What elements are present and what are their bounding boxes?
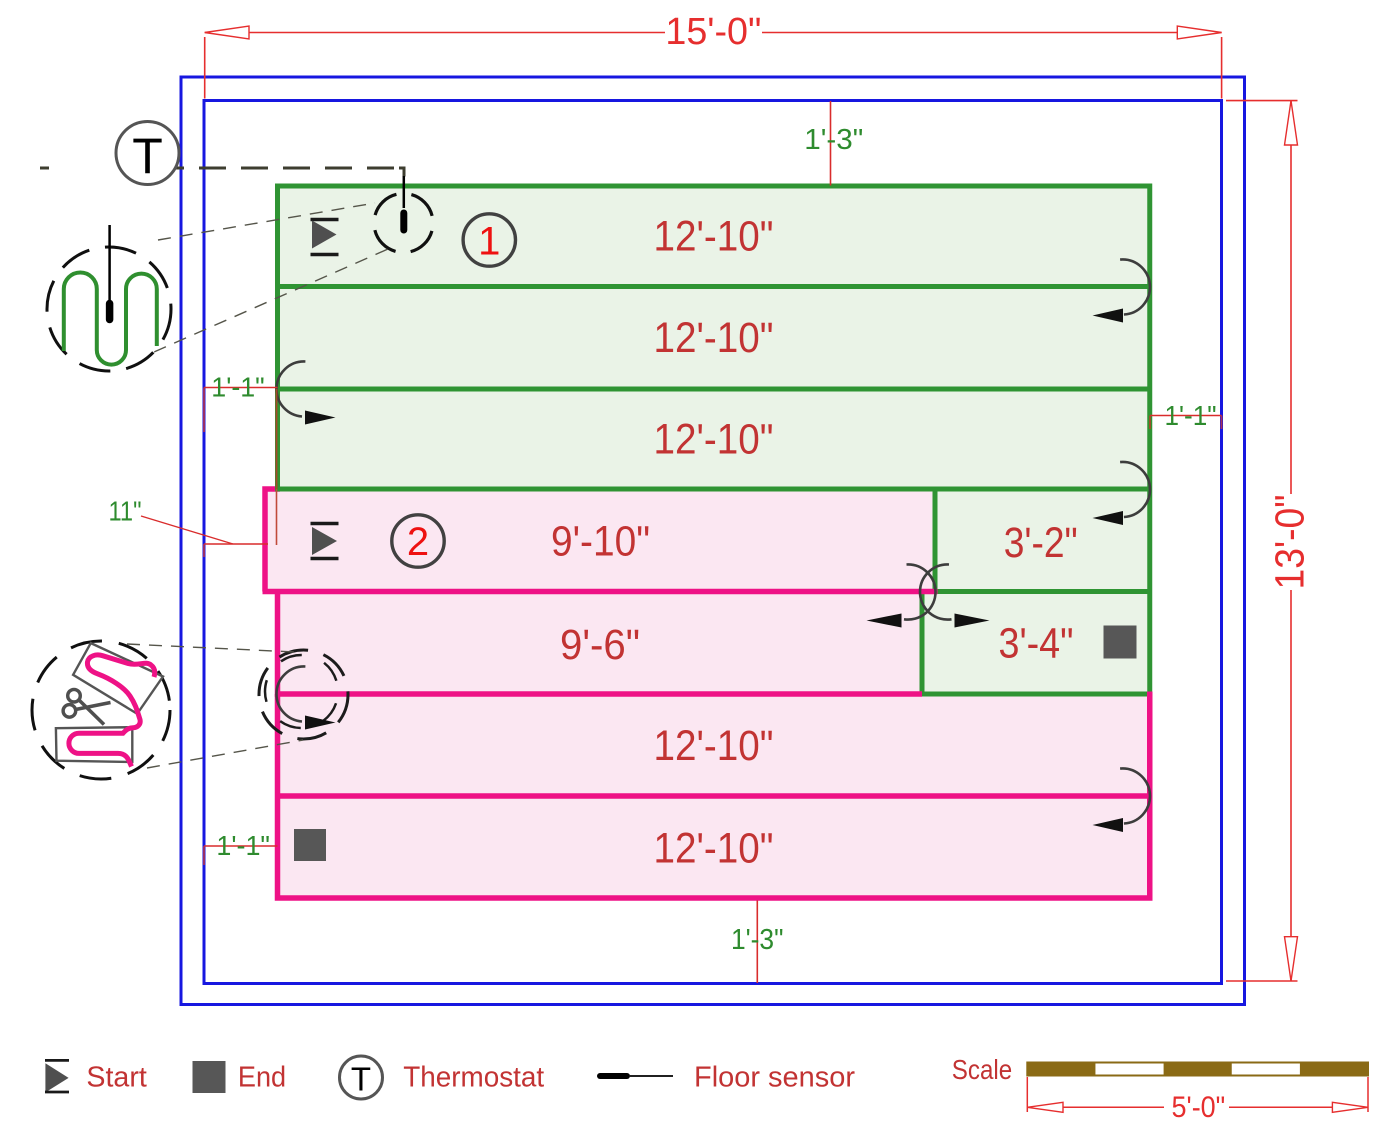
svg-text:Start: Start	[86, 1061, 146, 1093]
svg-text:15'-0": 15'-0"	[665, 11, 761, 53]
svg-text:12'-10": 12'-10"	[654, 417, 774, 464]
svg-text:1'-1": 1'-1"	[211, 372, 264, 403]
svg-text:Floor sensor: Floor sensor	[694, 1061, 855, 1093]
svg-text:T: T	[132, 128, 163, 184]
svg-text:12'-10": 12'-10"	[654, 723, 774, 770]
svg-text:1'-1": 1'-1"	[216, 830, 270, 861]
svg-text:12'-10": 12'-10"	[654, 826, 774, 873]
svg-text:1'-3": 1'-3"	[804, 124, 863, 156]
svg-text:9'-6": 9'-6"	[560, 622, 640, 669]
svg-text:9'-10": 9'-10"	[551, 519, 650, 566]
svg-text:3'-4": 3'-4"	[999, 621, 1074, 668]
svg-text:Scale: Scale	[952, 1054, 1012, 1085]
svg-text:12'-10": 12'-10"	[654, 214, 774, 261]
svg-text:Thermostat: Thermostat	[403, 1061, 544, 1093]
svg-text:End: End	[238, 1061, 286, 1093]
svg-text:13'-0": 13'-0"	[1267, 495, 1313, 590]
svg-text:12'-10": 12'-10"	[654, 315, 774, 362]
svg-text:T: T	[351, 1060, 371, 1097]
svg-text:11": 11"	[109, 496, 142, 527]
svg-text:3'-2": 3'-2"	[1004, 520, 1078, 567]
svg-text:5'-0": 5'-0"	[1172, 1091, 1226, 1124]
svg-text:1'-3": 1'-3"	[731, 924, 784, 956]
svg-text:1: 1	[478, 220, 500, 264]
svg-text:1'-1": 1'-1"	[1165, 400, 1217, 431]
svg-text:2: 2	[407, 520, 429, 564]
